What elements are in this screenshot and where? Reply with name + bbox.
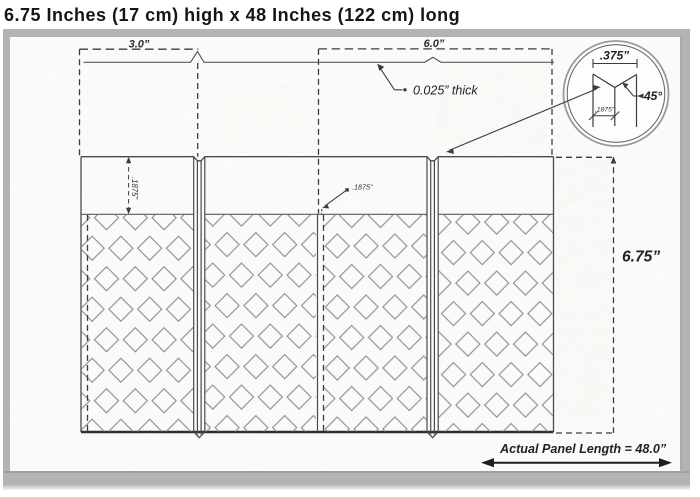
svg-text:3.0”: 3.0” [129, 39, 150, 51]
svg-text:.1875”: .1875” [595, 107, 615, 114]
svg-text:6.75”: 6.75” [622, 249, 660, 266]
svg-text:6.0”: 6.0” [424, 38, 445, 50]
svg-text:Actual Panel Length = 48.0”: Actual Panel Length = 48.0” [499, 442, 667, 456]
svg-text:0.025” thick: 0.025” thick [413, 84, 478, 98]
svg-text:.1875”: .1875” [352, 183, 373, 192]
svg-text:.375”: .375” [600, 49, 629, 63]
svg-text:.1875”: .1875” [130, 177, 139, 200]
svg-text:45°: 45° [643, 89, 662, 103]
